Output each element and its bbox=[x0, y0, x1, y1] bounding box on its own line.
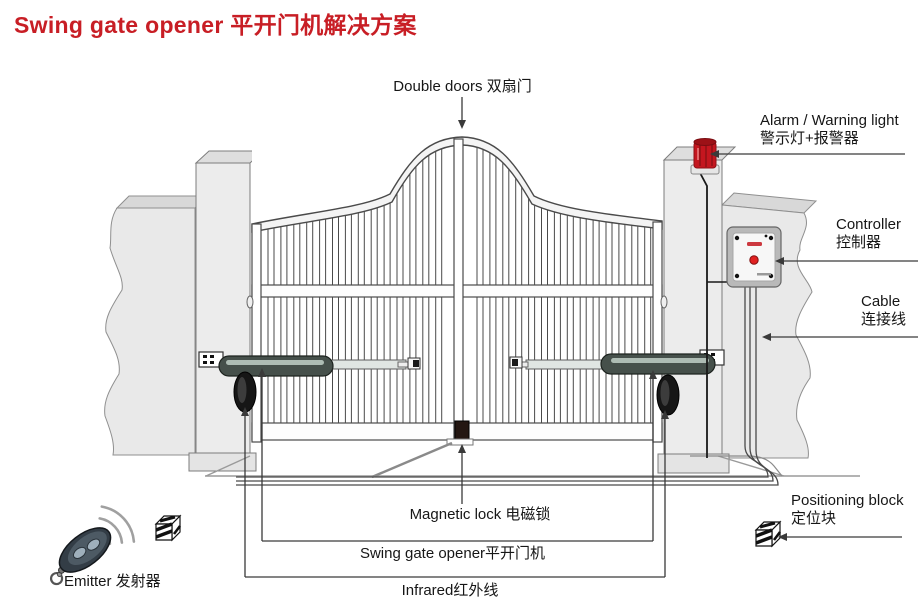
gate-center-stile bbox=[454, 139, 463, 442]
label-swing-gate-opener: Swing gate opener平开门机 bbox=[330, 545, 575, 563]
label-infrared: Infrared红外线 bbox=[370, 582, 530, 600]
label-emitter: Emitter 发射器 bbox=[64, 573, 161, 591]
left-wall bbox=[105, 196, 207, 455]
label-cable-en: Cable bbox=[861, 293, 906, 311]
label-double-doors: Double doors 双扇门 bbox=[380, 78, 545, 96]
right-photocell bbox=[657, 375, 679, 415]
label-cable: Cable 连接线 bbox=[861, 293, 906, 329]
controller-icon bbox=[727, 227, 781, 287]
label-controller-en: Controller bbox=[836, 216, 901, 234]
left-photocell bbox=[234, 372, 256, 412]
label-alarm-en: Alarm / Warning light bbox=[760, 112, 899, 130]
positioning-block-left-icon bbox=[156, 516, 180, 540]
warning-light-icon bbox=[691, 139, 719, 175]
left-hinge bbox=[247, 296, 253, 308]
gate-doors bbox=[247, 95, 667, 442]
right-hinge bbox=[661, 296, 667, 308]
label-cable-zh: 连接线 bbox=[861, 311, 906, 329]
label-controller: Controller 控制器 bbox=[836, 216, 901, 252]
label-positioning-zh: 定位块 bbox=[791, 510, 904, 528]
label-positioning-en: Positioning block bbox=[791, 492, 904, 510]
label-controller-zh: 控制器 bbox=[836, 234, 901, 252]
label-magnetic-lock: Magnetic lock 电磁锁 bbox=[385, 506, 575, 524]
label-alarm: Alarm / Warning light 警示灯+报警器 bbox=[760, 112, 899, 148]
swing-gate-diagram: Swing gate opener 平开门机解决方案 bbox=[0, 0, 920, 612]
label-alarm-zh: 警示灯+报警器 bbox=[760, 130, 899, 148]
positioning-block-right-icon bbox=[756, 522, 780, 546]
label-positioning-block: Positioning block 定位块 bbox=[791, 492, 904, 528]
